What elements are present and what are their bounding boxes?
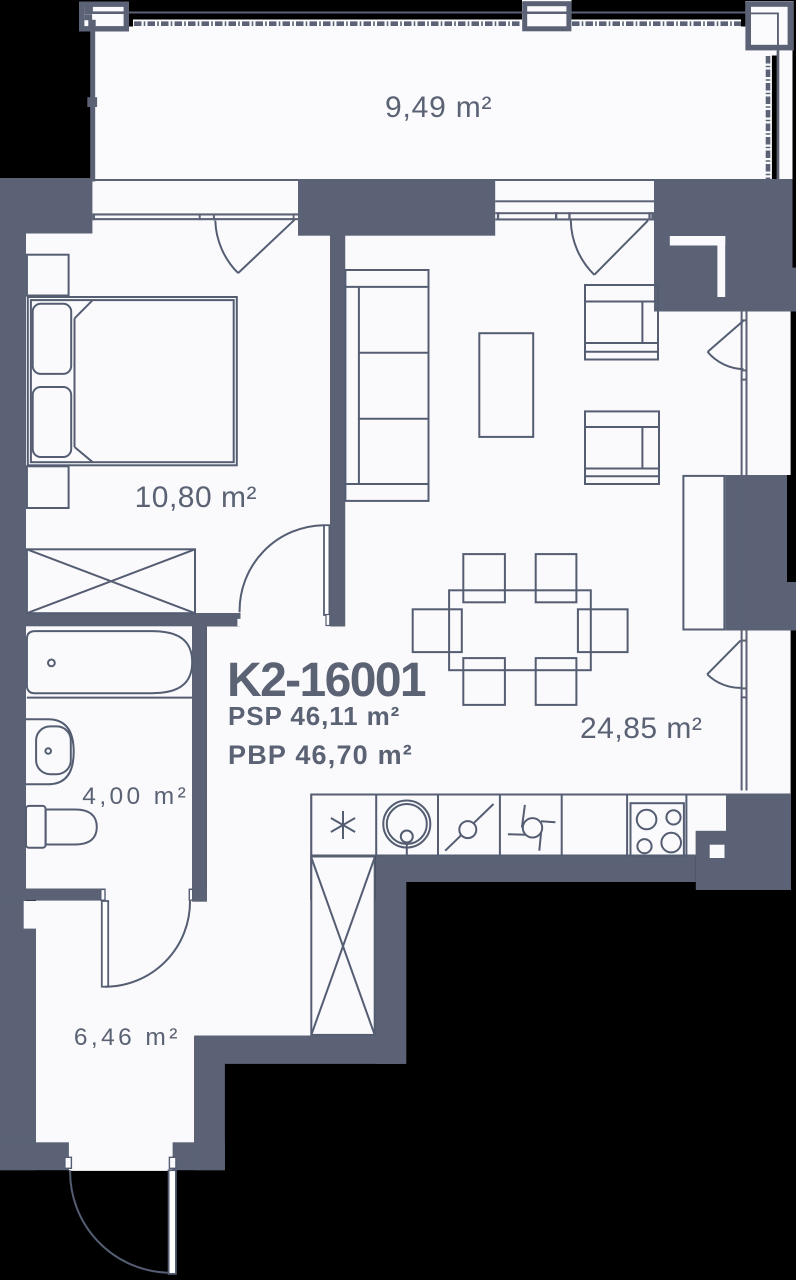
svg-text:K2-16001: K2-16001 xyxy=(227,654,426,707)
svg-text:6,46 m²: 6,46 m² xyxy=(74,1024,181,1051)
svg-text:9,49 m²: 9,49 m² xyxy=(385,91,492,124)
svg-text:24,85 m²: 24,85 m² xyxy=(580,712,702,745)
svg-text:PSP 46,11 m²: PSP 46,11 m² xyxy=(228,701,400,731)
svg-text:10,80 m²: 10,80 m² xyxy=(135,481,257,514)
svg-text:4,00 m²: 4,00 m² xyxy=(82,783,189,810)
svg-text:PBP 46,70 m²: PBP 46,70 m² xyxy=(228,740,413,770)
